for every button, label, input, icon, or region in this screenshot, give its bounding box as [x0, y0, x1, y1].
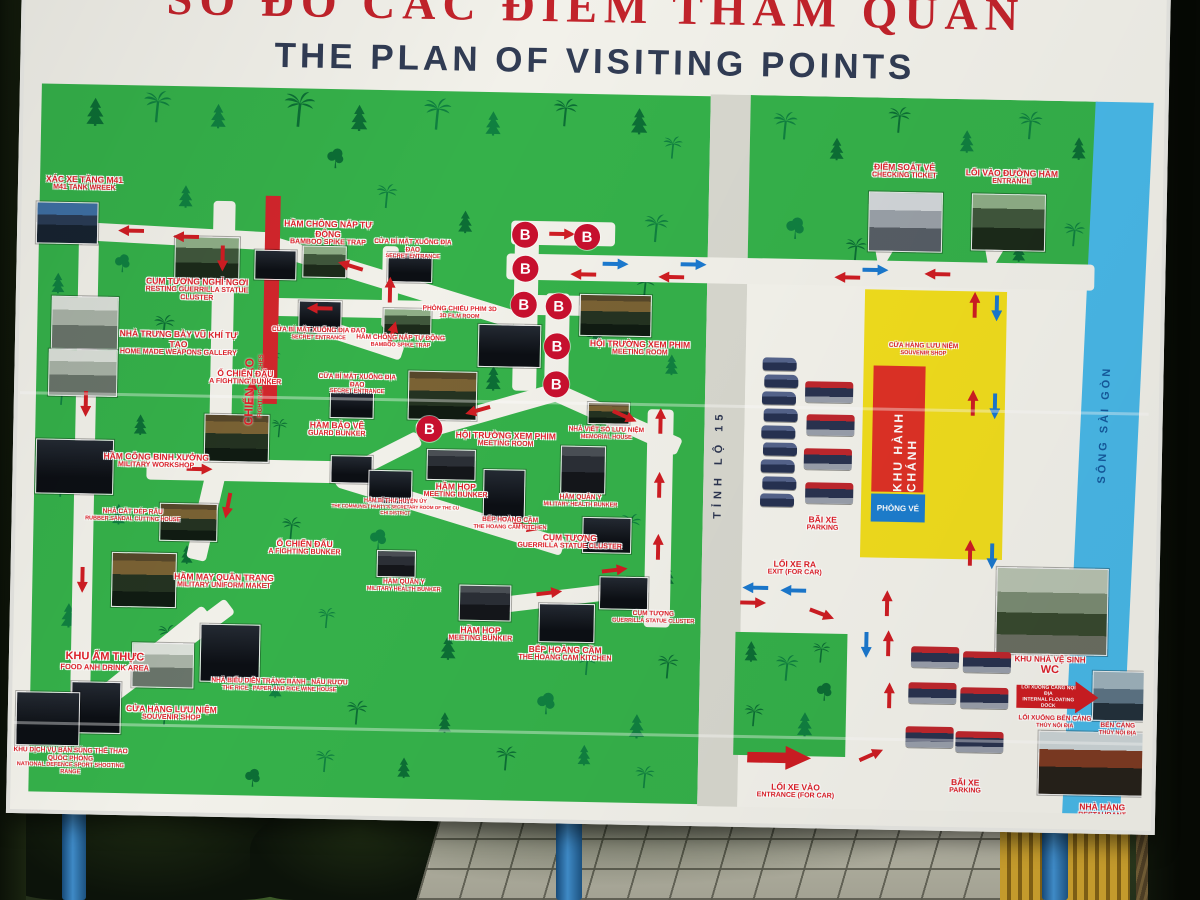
- car-icon: [763, 442, 797, 456]
- poi-kitchen-2: BẾP HOÀNG CẦMTHE HOANG CAM KITCHEN: [505, 643, 625, 664]
- photo-guard-bunker: [330, 455, 373, 484]
- bus-icon: [806, 414, 854, 436]
- ticket-office-block: PHÒNG VÉ: [871, 493, 926, 522]
- dock-arrow-label-en: INTERNAL FLOATING DOCK: [1016, 696, 1080, 710]
- poi-shooting-range: KHU DỊCH VỤ BẮN SÚNG THỂ THAO QUỐC PHÒNG…: [13, 746, 129, 776]
- photo-dock: [1092, 671, 1155, 722]
- poi-3d-film-room: PHÒNG CHIẾU PHIM 3D3D FILM ROOM: [403, 304, 515, 320]
- photo-shooting-range: [15, 691, 80, 746]
- photo-trench: [254, 250, 297, 281]
- poi-tank-wreck: XÁC XE TĂNG M41M41 TANK WREEK: [32, 173, 137, 193]
- poi-statue-cluster-1: CỤM TƯỢNGGUERRILLA STATUE CLUSTER: [512, 532, 627, 552]
- photo-meeting-bunker-2: [459, 585, 512, 622]
- car-icon: [762, 391, 796, 405]
- poi-meeting-room-1: HỘI TRƯỜNG XEM PHIMMEETING ROOM: [577, 338, 703, 359]
- poi-weapons-gallery: NHÀ TRƯNG BÀY VŨ KHÍ TỰ TẠOHOME MADE WEA…: [116, 328, 242, 359]
- dock-arrow-label-vi: LỐI XUỐNG CẢNG NỘI ĐỊA: [1016, 684, 1080, 698]
- poi-souvenir-left: CỬA HÀNG LƯU NIỆMSOUVENIR SHOP: [119, 703, 224, 723]
- trench-label-vi: CHIẾN HÀO: [241, 285, 258, 425]
- poi-exit-car: LỐI XE RAEXIT (FOR CAR): [739, 558, 851, 578]
- bus-icon: [908, 682, 956, 704]
- photo-health-bunker-2: [377, 550, 417, 578]
- photo-tunnel-entrance: [971, 193, 1046, 251]
- photo-meeting-bunker-1: [426, 449, 476, 481]
- poi-meeting-bunker-2: HẦM HỌPMEETING BUNKER: [430, 624, 530, 644]
- poi-entrance-car: LỐI XE VÀOENTRANCE (FOR CAR): [720, 781, 870, 802]
- bus-icon: [911, 646, 959, 668]
- poi-rice-house: NHÀ BIỂU DIỄN TRÁNG BÁNH - NẤU RƯỢUTHE R…: [209, 677, 349, 694]
- poi-health-bunker-1: HẦM QUÂN YMILITARY HEALTH BUNKER: [523, 493, 638, 509]
- bus-icon: [960, 687, 1008, 709]
- photo-health-bunker-1: [560, 445, 606, 494]
- poi-wc: KHU NHÀ VỆ SINHWC: [990, 654, 1110, 679]
- admin-building-label: KHU HÀNH CHÁNH: [890, 374, 920, 493]
- car-icon: [761, 459, 795, 473]
- bus-icon: [804, 448, 852, 470]
- poi-uniform-maker: HẦM MAY QUÂN TRANGMILITARY UNIFORM MAKET: [161, 571, 286, 592]
- photo-checking-ticket: [868, 191, 943, 252]
- photo-rice-house: [199, 624, 260, 683]
- poi-secret-entrance-3: CỬA BÍ MẬT XUỐNG ĐỊA ĐẠOSECRET ENTRANCE: [312, 373, 402, 397]
- map-area: SÔNG SÀI GÒN TỈNH LỘ 15: [12, 81, 1154, 815]
- poi-fighting-bunker-1: Ổ CHIẾN ĐẤUA FIGHTING BUNKER: [185, 367, 305, 388]
- photo-tank-wreck: [36, 201, 99, 244]
- poi-secret-entrance-1: CỬA BÍ MẬT XUỐNG ĐỊA ĐẠOSECRET ENTRANCE: [368, 238, 458, 262]
- car-icon: [760, 493, 794, 507]
- poi-tunnel-entrance: LỐI VÀO ĐƯỜNG HẦMENTRANCE: [954, 167, 1069, 187]
- poi-spike-trap-1: HẦM CHÔNG NẮP TỰ ĐỘNGBAMBOO SPIKE TRAP: [273, 218, 384, 248]
- bus-icon: [905, 726, 953, 748]
- poi-parking-2: BÃI XEPARKING: [912, 776, 1017, 796]
- photo-3d-film-room: [478, 324, 542, 368]
- car-icon: [764, 408, 798, 422]
- photo-kitchen-2: [538, 603, 595, 643]
- bus-icon: [805, 482, 853, 504]
- poi-souvenir-right: CỬA HÀNG LƯU NIỆMSOUVENIR SHOP: [871, 341, 976, 357]
- poi-kitchen-1: BẾP HOÀNG CẦMTHE HOANG CAM KITCHEN: [457, 516, 562, 532]
- poi-dock: BẾN CẢNGTHỦY NỘI ĐỊA: [1074, 721, 1155, 737]
- photo-meeting-room-1: [579, 294, 652, 337]
- poi-fighting-bunker-2: Ổ CHIẾN ĐẤUA FIGHTING BUNKER: [242, 537, 367, 558]
- poi-checking-ticket: ĐIỂM SOÁT VÉCHECKING TICKET: [844, 161, 964, 182]
- poi-statue-cluster-2: CỤM TƯỢNGGUERRILLA STATUE CLUSTER: [596, 609, 711, 625]
- car-icon: [762, 476, 796, 490]
- poi-secretary-bunker: HẦM BÍ THƯ HUYỆN ỦYTHE COMMUNIST PARTY'S…: [328, 497, 463, 517]
- poi-sandal-house: NHÀ CẮT DÉP RÂURUBBER SANDAL CUTTING HOU…: [73, 507, 193, 523]
- photo-wc: [995, 567, 1109, 656]
- photo-weapons-gallery-2: [48, 349, 118, 397]
- ticket-office-label: PHÒNG VÉ: [877, 503, 919, 513]
- road-name: TỈNH LỘ 15: [712, 409, 726, 519]
- photo-weapons-gallery-1: [51, 296, 119, 350]
- poi-memorial-house: NHÀ VIẾT SỔ LƯU NIỆMMEMORIAL HOUSE: [547, 425, 665, 441]
- poi-health-bunker-2: HẦM QUÂN YMILITARY HEALTH BUNKER: [346, 577, 461, 593]
- poi-parking-1: BÃI XEPARKING: [787, 514, 857, 534]
- car-icon: [764, 374, 798, 388]
- photo-resting-statues: [174, 236, 240, 281]
- poi-restaurant: NHÀ HÀNGRESTAURANT: [1042, 801, 1155, 815]
- poi-resting-statues: CỤM TƯỢNG NGHỈ NGƠIRESTING GUERRILLA STA…: [132, 275, 262, 304]
- photo-statue-cluster-2: [599, 576, 649, 610]
- poi-guard-bunker: HẦM BẢO VỆGUARD BUNKER: [289, 419, 384, 439]
- map-sign-board: SƠ ĐỒ CÁC ĐIỂM THAM QUAN THE PLAN OF VIS…: [6, 0, 1171, 835]
- admin-building: KHU HÀNH CHÁNH: [871, 365, 925, 492]
- poi-workshop: HẦM CÔNG BINH XƯỞNGMILITARY WORKSHOP: [94, 451, 219, 472]
- poi-food-area: KHU ẨM THỰCFOOD ANH DRINK AREA: [55, 650, 155, 674]
- car-icon: [761, 425, 795, 439]
- poi-spike-trap-2: HẦM CHÔNG NẮP TỰ ĐỘNGBAMBOO SPIKE TRAP: [353, 333, 448, 349]
- photo-scene: SƠ ĐỒ CÁC ĐIỂM THAM QUAN THE PLAN OF VIS…: [0, 0, 1200, 900]
- car-icon: [763, 357, 797, 371]
- poi-meeting-bunker-1: HẦM HỌPMEETING BUNKER: [408, 481, 503, 501]
- river-name: SÔNG SÀI GÒN: [1096, 366, 1114, 484]
- poi-secret-entrance-2: CỬA BÍ MẬT XUỐNG ĐỊA ĐẠOSECRET ENTRANCE: [271, 326, 366, 342]
- bus-icon: [805, 381, 853, 403]
